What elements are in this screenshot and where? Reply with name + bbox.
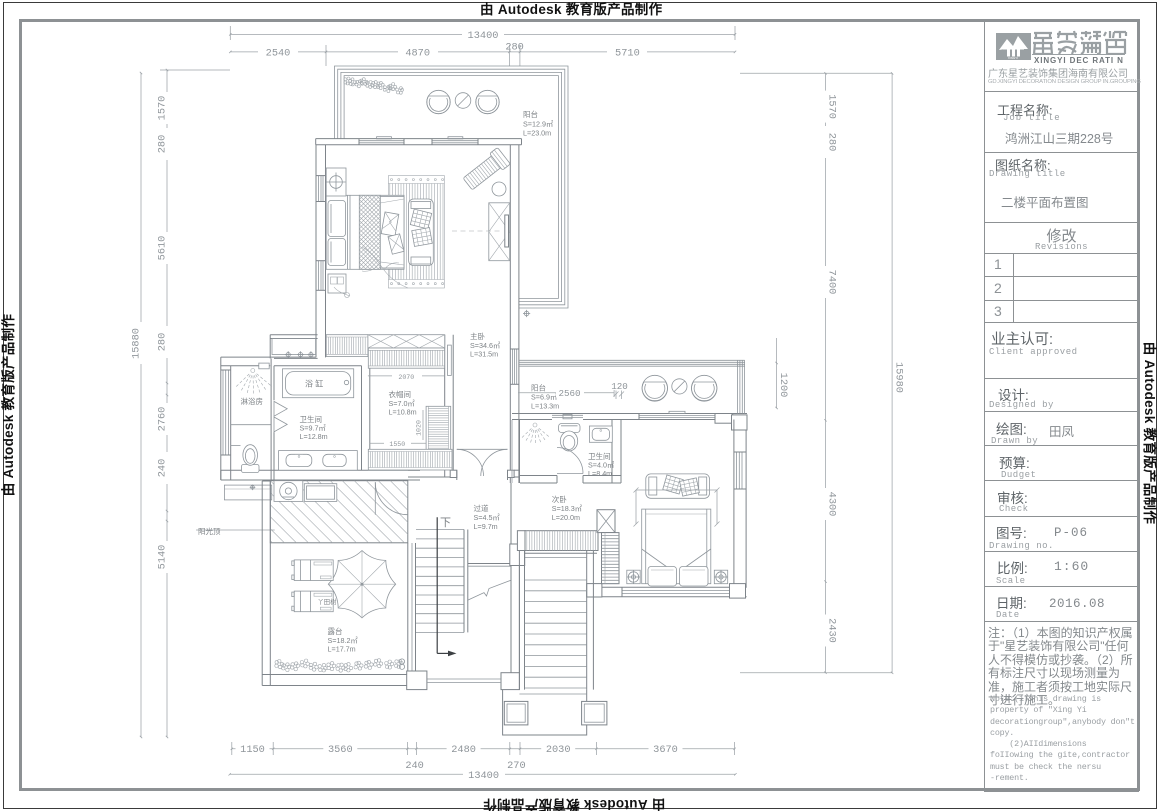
svg-text:280: 280 <box>826 133 838 152</box>
svg-text:4300: 4300 <box>826 492 838 517</box>
svg-text:1200: 1200 <box>777 373 789 398</box>
svg-text:L=12.8m: L=12.8m <box>300 432 328 441</box>
svg-text:主卧: 主卧 <box>470 331 485 341</box>
svg-text:280: 280 <box>157 135 169 154</box>
svg-text:S=18.3㎡: S=18.3㎡ <box>552 504 582 513</box>
svg-text:卫生间: 卫生间 <box>300 414 323 424</box>
svg-text:2760: 2760 <box>157 407 169 432</box>
svg-text:阳台: 阳台 <box>523 109 538 119</box>
svg-text:浴 缸: 浴 缸 <box>305 379 323 389</box>
svg-text:15980: 15980 <box>893 362 905 393</box>
svg-text:1570: 1570 <box>157 96 169 121</box>
svg-text:240: 240 <box>405 760 424 772</box>
svg-text:120: 120 <box>611 381 628 392</box>
svg-text:2070: 2070 <box>398 374 414 381</box>
svg-text:L=8.4m: L=8.4m <box>588 469 612 478</box>
svg-text:丫田树: 丫田树 <box>318 597 338 606</box>
svg-text:阳台: 阳台 <box>531 383 546 393</box>
svg-text:5710: 5710 <box>615 48 640 60</box>
svg-text:露台: 露台 <box>328 626 343 636</box>
svg-text:L=17.7m: L=17.7m <box>328 645 356 654</box>
svg-text:S=6.9㎡: S=6.9㎡ <box>531 393 557 402</box>
svg-text:280: 280 <box>157 333 169 352</box>
svg-text:2540: 2540 <box>266 48 291 60</box>
svg-text:15880: 15880 <box>131 328 143 359</box>
svg-text:2480: 2480 <box>451 744 476 756</box>
svg-text:13400: 13400 <box>468 770 499 782</box>
svg-text:3560: 3560 <box>328 744 353 756</box>
svg-text:阳光顶: 阳光顶 <box>198 526 221 536</box>
svg-text:卫生间: 卫生间 <box>588 451 611 461</box>
svg-text:2030: 2030 <box>546 744 571 756</box>
svg-text:L=13.3m: L=13.3m <box>531 402 559 411</box>
svg-text:次卧: 次卧 <box>552 494 567 504</box>
svg-text:淋浴房: 淋浴房 <box>241 396 264 406</box>
svg-text:1020: 1020 <box>416 420 423 436</box>
svg-text:1150: 1150 <box>240 744 265 756</box>
svg-text:240: 240 <box>157 459 169 478</box>
svg-text:S=12.9㎡: S=12.9㎡ <box>523 120 553 129</box>
svg-text:3670: 3670 <box>653 744 678 756</box>
svg-text:5140: 5140 <box>157 545 169 570</box>
svg-text:下: 下 <box>440 517 451 529</box>
svg-text:过道: 过道 <box>474 503 489 513</box>
svg-text:2430: 2430 <box>826 618 838 643</box>
svg-text:L=31.5m: L=31.5m <box>470 350 498 359</box>
svg-text:4870: 4870 <box>405 48 430 60</box>
svg-text:L=10.8m: L=10.8m <box>389 408 417 417</box>
svg-text:7400: 7400 <box>826 270 838 295</box>
svg-text:5610: 5610 <box>157 236 169 261</box>
svg-text:2560: 2560 <box>558 388 580 399</box>
svg-text:L=20.0m: L=20.0m <box>552 513 580 522</box>
svg-text:1570: 1570 <box>826 94 838 119</box>
svg-text:L=9.7m: L=9.7m <box>474 522 498 531</box>
svg-text:L=23.0m: L=23.0m <box>523 129 551 138</box>
svg-text:270: 270 <box>507 760 526 772</box>
svg-text:280: 280 <box>505 42 524 54</box>
svg-text:S=4.5㎡: S=4.5㎡ <box>474 513 500 522</box>
svg-text:13400: 13400 <box>468 30 499 42</box>
svg-text:衣帽间: 衣帽间 <box>389 389 412 399</box>
svg-text:1550: 1550 <box>389 441 405 448</box>
